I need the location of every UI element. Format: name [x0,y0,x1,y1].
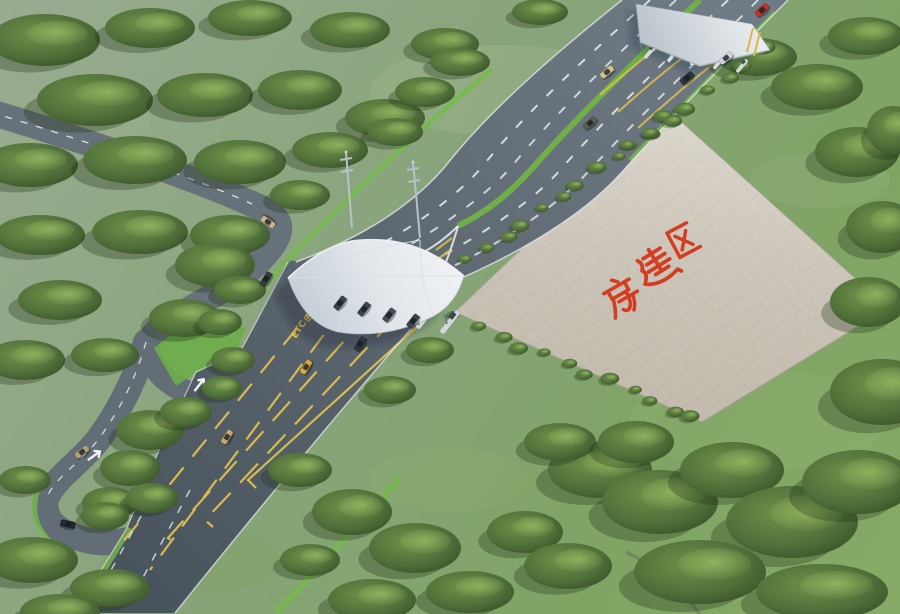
mast-tip [412,161,415,164]
mast-tip [345,151,348,154]
toll-station-render: ETC 20 [0,0,900,614]
render-viewport: ETC 20 [0,0,900,614]
